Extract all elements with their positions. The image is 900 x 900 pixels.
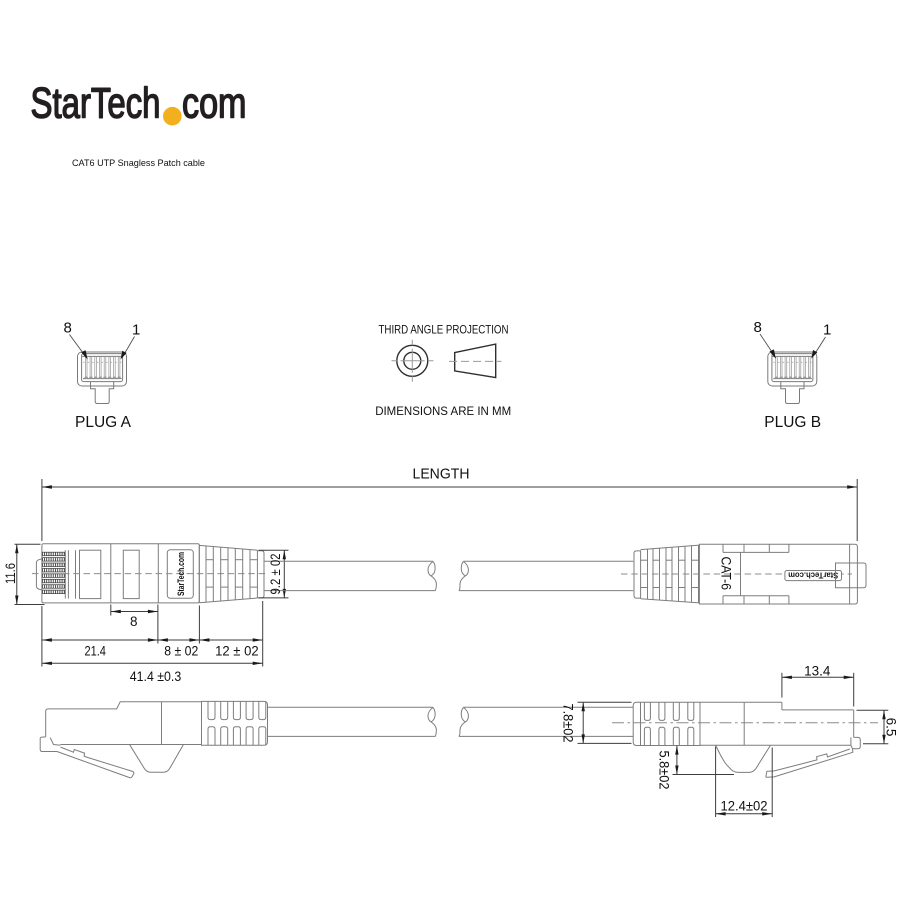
- svg-text:5.8±02: 5.8±02: [657, 751, 672, 790]
- svg-text:11.6: 11.6: [3, 563, 18, 584]
- svg-text:21.4: 21.4: [84, 644, 106, 659]
- svg-text:12 ± 02: 12 ± 02: [215, 644, 259, 659]
- svg-text:6.5: 6.5: [883, 718, 898, 737]
- svg-text:StarTech.com: StarTech.com: [176, 552, 186, 596]
- svg-text:CAT6 UTP Snagless Patch cable: CAT6 UTP Snagless Patch cable: [72, 158, 205, 169]
- svg-text:8 ± 02: 8 ± 02: [164, 644, 198, 659]
- svg-text:DIMENSIONS ARE IN MM: DIMENSIONS ARE IN MM: [375, 404, 511, 418]
- svg-text:LENGTH: LENGTH: [413, 467, 470, 483]
- svg-text:com: com: [182, 81, 247, 128]
- svg-text:8: 8: [754, 319, 762, 336]
- svg-text:PLUG A: PLUG A: [75, 414, 132, 431]
- svg-text:1: 1: [823, 322, 831, 339]
- svg-text:StarTech: StarTech: [31, 81, 161, 128]
- svg-text:8: 8: [64, 320, 72, 337]
- svg-text:13.4: 13.4: [804, 663, 831, 678]
- svg-text:PLUG B: PLUG B: [764, 414, 821, 431]
- svg-text:9.2 ± 02: 9.2 ± 02: [268, 554, 283, 595]
- svg-text:1: 1: [132, 322, 140, 339]
- svg-text:12.4±02: 12.4±02: [721, 799, 768, 814]
- svg-text:CAT-6: CAT-6: [718, 556, 734, 590]
- svg-text:StarTech.com: StarTech.com: [788, 571, 838, 580]
- svg-text:THIRD ANGLE PROJECTION: THIRD ANGLE PROJECTION: [379, 322, 509, 336]
- svg-text:7.8±02: 7.8±02: [560, 704, 575, 743]
- svg-text:41.4 ±0.3: 41.4 ±0.3: [130, 669, 182, 684]
- svg-text:8: 8: [130, 614, 138, 629]
